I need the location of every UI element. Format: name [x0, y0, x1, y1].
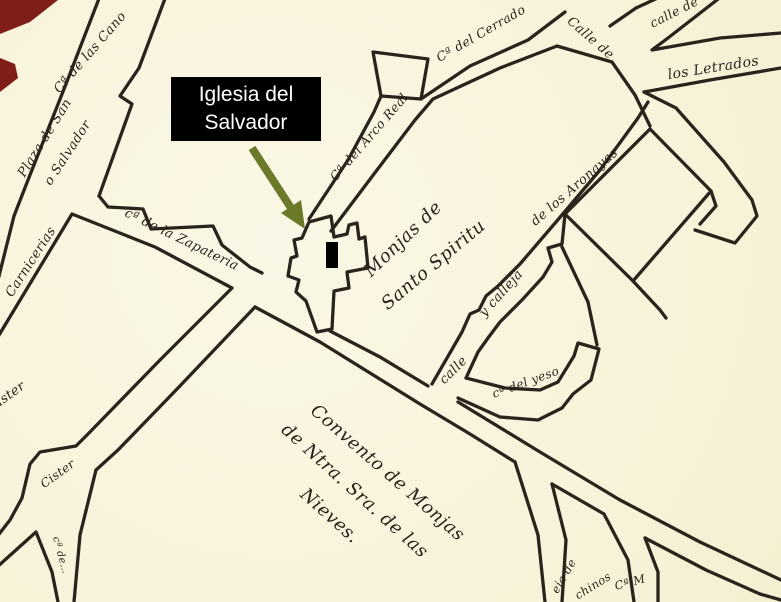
area-label-monjas-2: Santo Spiritu: [377, 215, 489, 314]
street-label-ister: ister: [0, 378, 29, 409]
street-label-cerrado: Cª del Cerrado: [434, 2, 528, 65]
annotation-label: Iglesia del Salvador: [171, 77, 321, 141]
annotation-label-line2: Salvador: [171, 109, 321, 137]
annotation-arrow: [252, 148, 305, 229]
street-label-ca-m: Cª M: [613, 571, 648, 593]
church-location-marker: [326, 242, 338, 268]
street-label-y-calleja: y calleja: [476, 267, 527, 321]
historic-map-screenshot: Cª de las Cano Plaza de San o Salvador C…: [0, 0, 781, 602]
street-label-arco-real: Cª del Arco Real: [327, 90, 411, 184]
street-label-illegible: cª de…: [50, 535, 71, 575]
red-building-fragments: [0, 0, 58, 92]
annotation-label-line1: Iglesia del: [171, 81, 321, 109]
street-label-calle: calle: [437, 354, 471, 388]
salvador-church-block: [288, 216, 368, 332]
street-label-carnicerias: Carnicerias: [3, 224, 59, 300]
street-label-aronayas: de los Aronayas: [528, 146, 621, 230]
street-label-yeso: cª del yeso: [490, 364, 561, 401]
city-block: [565, 129, 711, 281]
street-label-chinos: chinos: [572, 569, 613, 602]
street-label-calle-top: calle de: [647, 0, 701, 31]
historic-street-map: Cª de las Cano Plaza de San o Salvador C…: [0, 0, 781, 602]
street-label-cister: Cister: [38, 456, 79, 491]
